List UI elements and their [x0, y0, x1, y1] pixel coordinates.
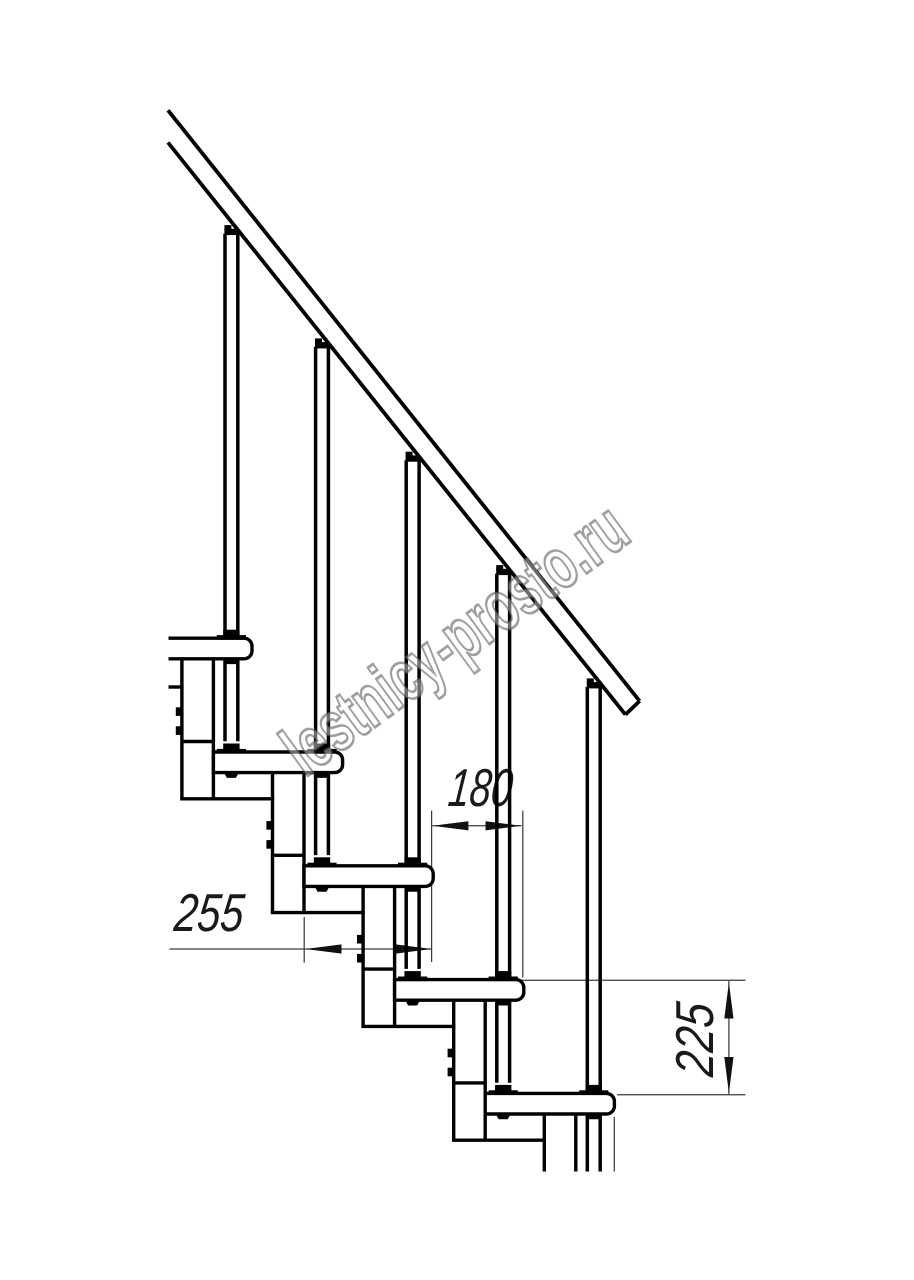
svg-text:180: 180: [446, 759, 516, 818]
svg-text:225: 225: [666, 999, 725, 1079]
svg-text:255: 255: [171, 884, 247, 943]
